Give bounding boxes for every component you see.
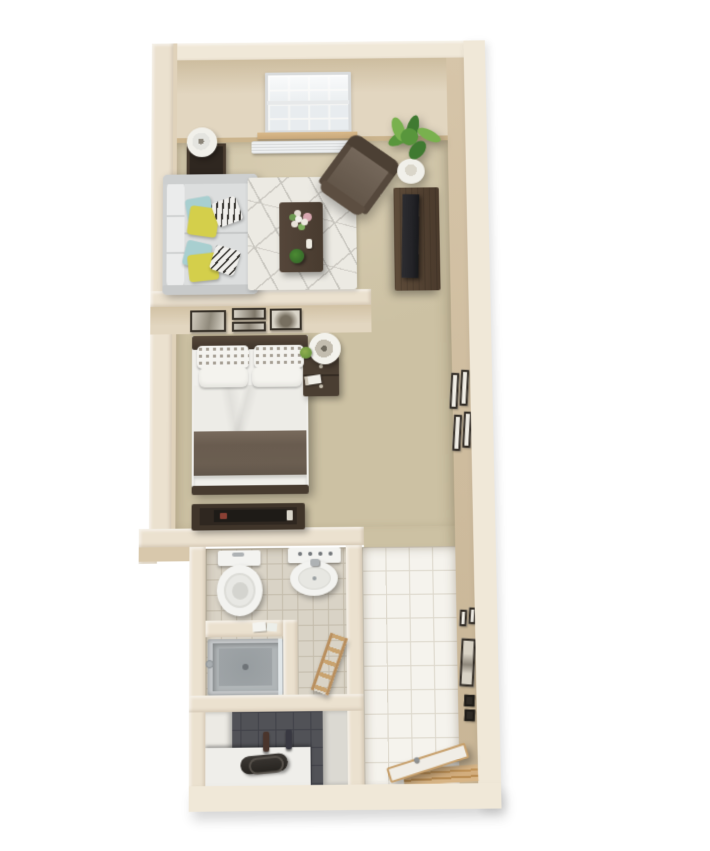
plant-leaf	[400, 128, 418, 145]
bedroom-gallery-frame	[190, 310, 226, 332]
sink-fixture-holes	[298, 552, 302, 556]
closet-figurine	[286, 729, 292, 749]
bathroom-closet-wall	[189, 694, 364, 713]
bedroom-gallery-frame	[232, 322, 266, 332]
patterned-pillow	[254, 345, 304, 368]
closet-right-panel	[323, 711, 348, 785]
duvet	[194, 384, 307, 432]
window	[265, 72, 351, 134]
television	[402, 194, 420, 278]
sink-faucet	[310, 559, 319, 566]
shower-drain	[242, 664, 248, 670]
table-lamp	[187, 127, 217, 157]
entry-wall-art	[459, 638, 476, 687]
small-plant	[300, 347, 312, 359]
towel	[252, 622, 266, 632]
shower-head	[206, 660, 214, 668]
bathroom-right-wall	[346, 545, 365, 789]
dresser-decor	[287, 510, 293, 520]
sofa-back-cushions	[166, 180, 184, 289]
shower-glass-panel	[278, 639, 282, 695]
floor-plan-canvas	[0, 0, 710, 851]
candle	[306, 239, 312, 249]
bedroom-bathroom-wall-face	[139, 547, 192, 562]
toilet-flush-button	[232, 552, 244, 556]
door-handle	[413, 757, 419, 764]
patterned-pillow	[197, 345, 249, 368]
bedside-lamp	[309, 333, 341, 365]
bedroom-gallery-frame	[270, 308, 302, 330]
small-potted-plant	[289, 249, 304, 264]
entry-wall-frame	[459, 610, 467, 627]
floor-plan-3d-render	[0, 0, 710, 851]
bed-blanket	[194, 430, 307, 477]
bed-footboard	[192, 485, 309, 495]
closet-figurine	[263, 732, 269, 752]
toilet-bowl-interior	[232, 582, 248, 600]
sofa-armrest	[162, 284, 257, 295]
sofa-armrest	[163, 174, 258, 185]
white-pillow	[252, 367, 302, 387]
light-switch-panel	[464, 695, 475, 707]
light-switch-panel	[464, 709, 475, 721]
window-sill	[257, 132, 357, 140]
corner-floor-plant	[389, 113, 443, 186]
sink-drain	[312, 576, 316, 580]
flower-bouquet	[295, 216, 302, 223]
plant-pot	[397, 159, 425, 184]
dresser-decor	[220, 513, 227, 519]
towel	[266, 623, 277, 632]
bathroom-left-wall	[189, 547, 206, 791]
bottom-exterior-wall	[189, 783, 502, 812]
bedroom-gallery-frame	[232, 308, 266, 320]
bathroom-partition-stub	[283, 620, 298, 699]
white-pillow	[199, 367, 248, 387]
